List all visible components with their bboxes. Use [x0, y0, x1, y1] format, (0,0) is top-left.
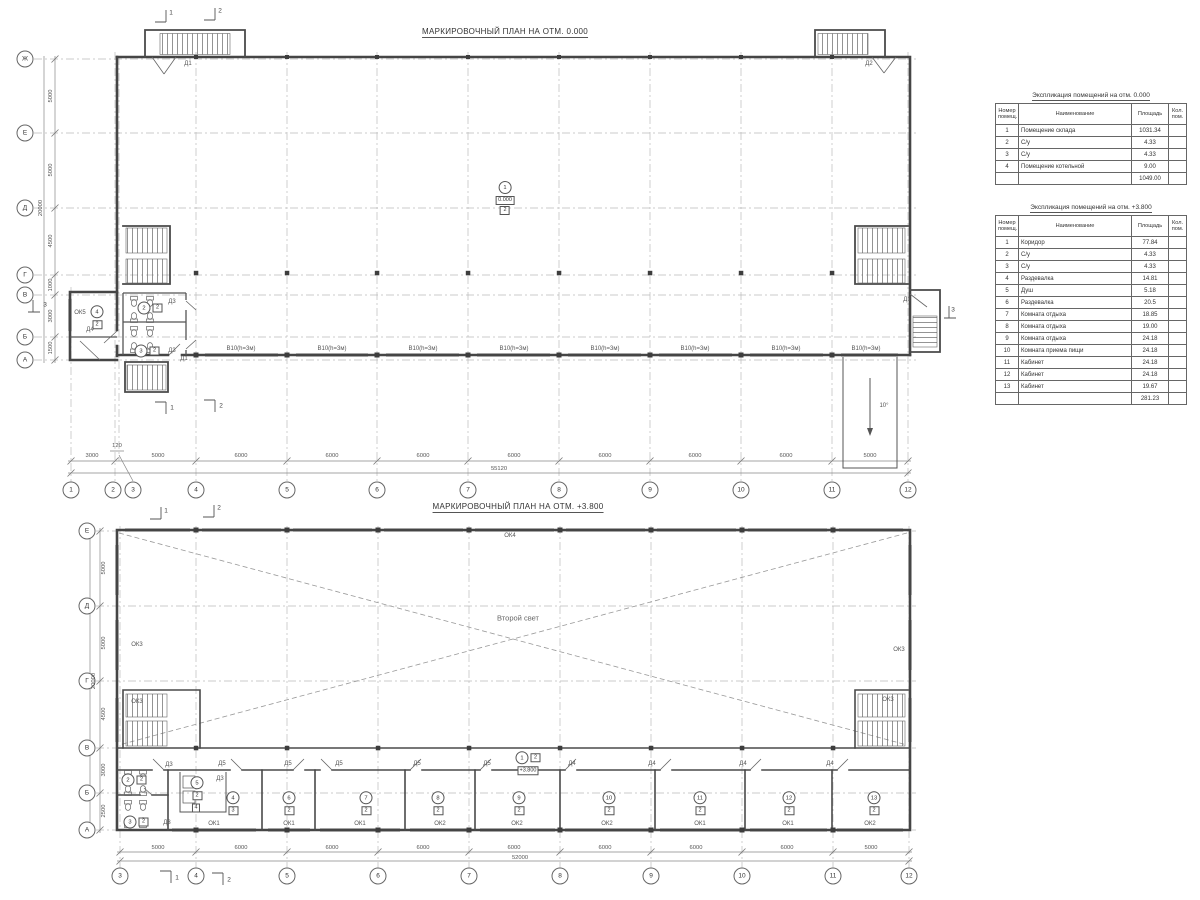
room-number-bubble: 2 [138, 302, 151, 315]
dimension-label: 3000 [48, 310, 54, 323]
cell-area: 24.18 [1132, 333, 1169, 345]
cell-number: 3 [996, 261, 1019, 273]
cell-number: 6 [996, 297, 1019, 309]
room-number-bubble: 4 [91, 305, 104, 318]
grid-row-bubble: Е [79, 523, 96, 540]
grid-row-bubble: А [79, 822, 96, 839]
room-mark: 4 2 [91, 305, 104, 329]
room-sub-box: 2 [192, 791, 202, 800]
dimension-label: 6000 [417, 845, 430, 851]
grid-col-bubble: 7 [461, 868, 478, 885]
dimension-label: 5000 [864, 453, 877, 459]
annotation-label: Д4 [739, 761, 746, 767]
annotation-label: Д4 [826, 761, 833, 767]
room-sub-box: 2 [137, 776, 147, 785]
cell-name: Комната отдыха [1019, 321, 1132, 333]
table-row: 7 Комната отдыха 18.85 [996, 309, 1187, 321]
elevation-box: 0.000 [496, 196, 515, 205]
cell-count [1169, 309, 1187, 321]
grid-col-bubble: 7 [460, 482, 477, 499]
cell-count [1169, 345, 1187, 357]
room-sub-box: 2 [361, 806, 371, 815]
cell-area: 4.33 [1132, 137, 1169, 149]
annotation-label: ОК1 [782, 821, 794, 827]
annotation-label: В10(h=3м) [772, 346, 801, 352]
table-header-row: Номер помещ. Наименование Площадь Кол. п… [996, 216, 1187, 237]
room-sub-box: 2 [784, 806, 794, 815]
annotation-label: Д3 [165, 762, 172, 768]
annotation-label: Д5 [284, 761, 291, 767]
section-flag-number: 2 [217, 505, 221, 512]
grid-col-bubble: 3 [112, 868, 129, 885]
room-sub-box: 2 [500, 206, 510, 215]
cell-area: 19.00 [1132, 321, 1169, 333]
dimension-label: 5000 [48, 164, 54, 177]
grid-col-bubble: 6 [370, 868, 387, 885]
cell-area: 24.18 [1132, 369, 1169, 381]
col-header-name: Наименование [1019, 216, 1132, 237]
dimension-label: 6000 [689, 453, 702, 459]
room-mark: 3 2 [135, 345, 160, 358]
cell-number: 7 [996, 309, 1019, 321]
drawing-canvas: МАРКИРОВОЧНЫЙ ПЛАН НА ОТМ. 0.000 МАРКИРО… [0, 0, 1200, 900]
cell-area: 18.85 [1132, 309, 1169, 321]
table-row: 8 Комната отдыха 19.00 [996, 321, 1187, 333]
cell-count [1169, 237, 1187, 249]
cell-area: 14.81 [1132, 273, 1169, 285]
cell-count [1169, 357, 1187, 369]
annotation-label: В10(h=3м) [500, 346, 529, 352]
cell-name: Раздевалка [1019, 297, 1132, 309]
dimension-label: 5000 [101, 562, 107, 575]
second-light-label: Второй свет [497, 614, 539, 623]
grid-row-bubble: В [79, 740, 96, 757]
table-row: 10 Комната приема пищи 24.18 [996, 345, 1187, 357]
cell-count [1169, 161, 1187, 173]
dimension-label: 2500 [101, 805, 107, 818]
cell-number: 5 [996, 285, 1019, 297]
plan2-total-height: 20000 [91, 673, 97, 689]
grid-col-bubble: 6 [369, 482, 386, 499]
dimension-label: 6000 [599, 453, 612, 459]
table-row: 5 Душ 5.18 [996, 285, 1187, 297]
cell-count [1169, 333, 1187, 345]
annotation-label: ОК1 [208, 821, 220, 827]
annotation-label: ОК4 [504, 533, 516, 539]
cell-area: 4.33 [1132, 261, 1169, 273]
cell-number: 11 [996, 357, 1019, 369]
room-number-bubble: 6 [283, 791, 296, 804]
col-header-area: Площадь [1132, 104, 1169, 125]
plan1-total-height: 20000 [38, 200, 44, 216]
cell-number: 2 [996, 137, 1019, 149]
grid-col-bubble: 4 [188, 868, 205, 885]
cell-number: 1 [996, 125, 1019, 137]
dimension-label: 6000 [235, 845, 248, 851]
annotation-label: ОК2 [864, 821, 876, 827]
cell-name: С/у [1019, 149, 1132, 161]
grid-col-bubble: 8 [552, 868, 569, 885]
cell-count [1169, 261, 1187, 273]
cell-area: 77.84 [1132, 237, 1169, 249]
grid-col-bubble: 5 [279, 482, 296, 499]
cell-name: Душ [1019, 285, 1132, 297]
dimension-label: 5000 [152, 453, 165, 459]
room-sub-box: 2 [531, 753, 541, 762]
dimension-label: 1500 [48, 342, 54, 355]
grid-row-bubble: А [17, 352, 34, 369]
room-number-bubble: 11 [694, 791, 707, 804]
annotation-label: ОК2 [434, 821, 446, 827]
table-row: 1 Коридор 77.84 [996, 237, 1187, 249]
grid-row-bubble: Б [17, 329, 34, 346]
cell-total-area: 1049.00 [1132, 173, 1169, 185]
room-number-bubble: 8 [432, 791, 445, 804]
annotation-label: Д2 [865, 61, 872, 67]
grid-col-bubble: 11 [824, 482, 841, 499]
cell-name: Кабинет [1019, 369, 1132, 381]
dimension-label: 4500 [48, 235, 54, 248]
dimension-label: 6000 [781, 845, 794, 851]
room-mark: 6 2 [283, 791, 296, 815]
annotation-label: В10(h=3м) [318, 346, 347, 352]
cell-count [1169, 285, 1187, 297]
table-row: 2 С/у 4.33 [996, 249, 1187, 261]
cell-name: Комната отдыха [1019, 333, 1132, 345]
plan1-title: МАРКИРОВОЧНЫЙ ПЛАН НА ОТМ. 0.000 [422, 27, 588, 38]
cell-count [1169, 369, 1187, 381]
cell-area: 20.5 [1132, 297, 1169, 309]
table-row: 6 Раздевалка 20.5 [996, 297, 1187, 309]
annotation-label: ОК3 [131, 699, 143, 705]
table-row: 13 Кабинет 19.67 [996, 381, 1187, 393]
dimension-label: 120 [112, 443, 122, 449]
annotation-label: Д3 [168, 299, 175, 305]
dimension-label: 5000 [152, 845, 165, 851]
annotation-label: ОК2 [511, 821, 523, 827]
grid-row-bubble: Б [79, 785, 96, 802]
cell-name: С/у [1019, 261, 1132, 273]
room-sub-box: 2 [604, 806, 614, 815]
plan2-total-width: 52000 [512, 855, 528, 861]
room-mark: 10 2 [603, 791, 616, 815]
cell-empty [996, 393, 1019, 405]
annotation-label: ОК2 [601, 821, 613, 827]
dimension-label: 6000 [326, 453, 339, 459]
table-title: Экспликация помещений на отм. 0.000 [995, 92, 1187, 99]
section-flag-number: 3 [43, 302, 47, 309]
room-sub-box: 2 [433, 806, 443, 815]
annotation-label: ОК3 [893, 647, 905, 653]
dimension-label: 6000 [508, 453, 521, 459]
plan2-title: МАРКИРОВОЧНЫЙ ПЛАН НА ОТМ. +3.800 [433, 502, 604, 513]
room-number-bubble: 4 [227, 791, 240, 804]
grid-row-bubble: Д [79, 598, 96, 615]
section-flag-number: 2 [218, 8, 222, 15]
cell-total-area: 281.23 [1132, 393, 1169, 405]
grid-col-bubble: 12 [901, 868, 918, 885]
dimension-label: 3000 [86, 453, 99, 459]
dimension-label: 6000 [780, 453, 793, 459]
room-number-bubble: 12 [783, 791, 796, 804]
room-schedule-table-1: Экспликация помещений на отм. +3.800 Ном… [995, 204, 1187, 405]
cell-empty [1169, 393, 1187, 405]
dimension-label: 6000 [508, 845, 521, 851]
section-flag-number: 1 [164, 508, 168, 515]
section-flag-number: 1 [175, 875, 179, 882]
plan1-elevation-mark: 1 0.000 2 [496, 181, 515, 215]
annotation-label: Д1 [184, 61, 191, 67]
room-sub-box: 2 [869, 806, 879, 815]
cell-number: 10 [996, 345, 1019, 357]
room-mark: 3 2 [124, 816, 149, 829]
annotation-label: ОК5 [74, 310, 86, 316]
room-number-bubble: 7 [360, 791, 373, 804]
cell-count [1169, 321, 1187, 333]
cell-empty [1019, 393, 1132, 405]
table-row: 11 Кабинет 24.18 [996, 357, 1187, 369]
room-number-bubble: 3 [135, 345, 148, 358]
cell-area: 4.33 [1132, 249, 1169, 261]
cell-count [1169, 149, 1187, 161]
cell-area: 1031.34 [1132, 125, 1169, 137]
section-flag-number: 2 [227, 877, 231, 884]
cell-number: 2 [996, 249, 1019, 261]
cell-number: 13 [996, 381, 1019, 393]
dimension-label: 6000 [417, 453, 430, 459]
section-flag-number: 1 [169, 10, 173, 17]
cell-number: 4 [996, 273, 1019, 285]
room-mark: 2 2 [138, 302, 163, 315]
annotation-label: Д4 [648, 761, 655, 767]
table-row: 3 С/у 4.33 [996, 149, 1187, 161]
annotation-label: ОК3 [882, 697, 894, 703]
cell-area: 4.33 [1132, 149, 1169, 161]
cell-name: Помещение склада [1019, 125, 1132, 137]
grid-row-bubble: Ж [17, 51, 34, 68]
cell-area: 24.18 [1132, 357, 1169, 369]
room-number-bubble: 1 [498, 181, 511, 194]
room-sub-box: 2 [284, 806, 294, 815]
room-sub-box: 2 [514, 806, 524, 815]
dimension-label: 5000 [48, 90, 54, 103]
cell-count [1169, 273, 1187, 285]
table-row: 4 Помещение котельной 9.00 [996, 161, 1187, 173]
room-number-bubble: 1 [516, 751, 529, 764]
elevation-box: +3.800 [517, 766, 539, 775]
table-row: 3 С/у 4.33 [996, 261, 1187, 273]
annotation-label: ОК1 [354, 821, 366, 827]
dimension-label: 6000 [235, 453, 248, 459]
annotation-label: ОК1 [694, 821, 706, 827]
annotation-label: ОК1 [283, 821, 295, 827]
room-number-bubble: 2 [122, 774, 135, 787]
cell-name: С/у [1019, 137, 1132, 149]
room-mark: 11 2 [694, 791, 707, 815]
room-number-bubble: 10 [603, 791, 616, 804]
grid-col-bubble: 8 [551, 482, 568, 499]
cell-name: Коридор [1019, 237, 1132, 249]
cell-count [1169, 297, 1187, 309]
col-header-number: Номер помещ. [996, 216, 1019, 237]
room-sub-box: 2 [92, 320, 102, 329]
cell-number: 3 [996, 149, 1019, 161]
annotation-label: В10(h=3м) [681, 346, 710, 352]
cell-count [1169, 249, 1187, 261]
annotation-label: Д5 [218, 761, 225, 767]
cell-name: Комната приема пищи [1019, 345, 1132, 357]
annotation-label: Д3 [163, 820, 170, 826]
grid-row-bubble: Д [17, 200, 34, 217]
cell-empty [996, 173, 1019, 185]
grid-row-bubble: В [17, 287, 34, 304]
col-header-count: Кол. пом. [1169, 104, 1187, 125]
annotation-label: Д5 [335, 761, 342, 767]
section-flag-number: 2 [219, 403, 223, 410]
cell-empty [1019, 173, 1132, 185]
annotation-overlay: МАРКИРОВОЧНЫЙ ПЛАН НА ОТМ. 0.000 МАРКИРО… [0, 0, 1200, 900]
cell-count [1169, 137, 1187, 149]
dimension-label: 5000 [101, 637, 107, 650]
annotation-label: Д5 [413, 761, 420, 767]
annotation-label: ОК3 [131, 642, 143, 648]
plan2-elevation-mark: 1 2 +3.800 [516, 751, 541, 775]
table-row: 9 Комната отдыха 24.18 [996, 333, 1187, 345]
table-total-row: 281.23 [996, 393, 1187, 405]
grid-col-bubble: 10 [733, 482, 750, 499]
room-number-bubble: 3 [124, 816, 137, 829]
section-flag-number: 3 [951, 307, 955, 314]
cell-number: 9 [996, 333, 1019, 345]
grid-col-bubble: 1 [63, 482, 80, 499]
annotation-label: В10(h=3м) [852, 346, 881, 352]
dimension-label: 6000 [690, 845, 703, 851]
plan1-total-width: 55120 [491, 466, 507, 472]
grid-col-bubble: 2 [105, 482, 122, 499]
table-row: 4 Раздевалка 14.81 [996, 273, 1187, 285]
room-number-bubble: 13 [868, 791, 881, 804]
dimension-label: 4500 [101, 708, 107, 721]
table-row: 12 Кабинет 24.18 [996, 369, 1187, 381]
grid-col-bubble: 12 [900, 482, 917, 499]
annotation-label: Д5 [483, 761, 490, 767]
grid-col-bubble: 9 [643, 868, 660, 885]
cell-number: 8 [996, 321, 1019, 333]
room-sub-box: 3 [228, 806, 238, 815]
section-flag-number: 1 [170, 405, 174, 412]
room-mark: 2 2 [122, 774, 147, 787]
room-number-bubble: 5 [191, 776, 204, 789]
table-row: 1 Помещение склада 1031.34 [996, 125, 1187, 137]
cell-number: 12 [996, 369, 1019, 381]
table-total-row: 1049.00 [996, 173, 1187, 185]
annotation-label: Д4 [568, 761, 575, 767]
annotation-label: В10(h=3м) [227, 346, 256, 352]
cell-area: 9.00 [1132, 161, 1169, 173]
cell-area: 19.67 [1132, 381, 1169, 393]
dimension-label: 6000 [599, 845, 612, 851]
annotation-label: Д1 [903, 297, 910, 303]
grid-row-bubble: Е [17, 125, 34, 142]
cell-number: 1 [996, 237, 1019, 249]
table-header-row: Номер помещ. Наименование Площадь Кол. п… [996, 104, 1187, 125]
cell-name: Кабинет [1019, 357, 1132, 369]
cell-name: Комната отдыха [1019, 309, 1132, 321]
boxed-mark: 4 [192, 804, 200, 813]
room-mark: 12 2 [783, 791, 796, 815]
col-header-area: Площадь [1132, 216, 1169, 237]
room-sub-box: 2 [150, 347, 160, 356]
grid-row-bubble: Г [17, 267, 34, 284]
grid-col-bubble: 11 [825, 868, 842, 885]
grid-col-bubble: 10 [734, 868, 751, 885]
col-header-number: Номер помещ. [996, 104, 1019, 125]
room-sub-box: 2 [139, 818, 149, 827]
room-mark: 4 3 [227, 791, 240, 815]
dimension-label: 6000 [326, 845, 339, 851]
dimension-label: 1000 [48, 279, 54, 292]
cell-name: Помещение котельной [1019, 161, 1132, 173]
room-number-bubble: 9 [513, 791, 526, 804]
cell-area: 5.18 [1132, 285, 1169, 297]
room-schedule-table-0: Экспликация помещений на отм. 0.000 Номе… [995, 92, 1187, 185]
room-mark: 7 2 [360, 791, 373, 815]
cell-count [1169, 381, 1187, 393]
dimension-label: 5000 [865, 845, 878, 851]
cell-name: Кабинет [1019, 381, 1132, 393]
annotation-label: Д1 [180, 356, 187, 362]
cell-name: С/у [1019, 249, 1132, 261]
room-mark: 9 2 [513, 791, 526, 815]
room-mark: 8 2 [432, 791, 445, 815]
grid-col-bubble: 4 [188, 482, 205, 499]
room-sub-box: 2 [695, 806, 705, 815]
grid-col-bubble: 9 [642, 482, 659, 499]
annotation-label: Д3 [168, 348, 175, 354]
cell-empty [1169, 173, 1187, 185]
table-row: 2 С/у 4.33 [996, 137, 1187, 149]
cell-area: 24.18 [1132, 345, 1169, 357]
grid-col-bubble: 3 [125, 482, 142, 499]
room-mark: 13 2 [868, 791, 881, 815]
cell-name: Раздевалка [1019, 273, 1132, 285]
dimension-label: 3000 [101, 764, 107, 777]
grid-col-bubble: 5 [279, 868, 296, 885]
col-header-count: Кол. пом. [1169, 216, 1187, 237]
col-header-name: Наименование [1019, 104, 1132, 125]
room-mark: 5 2 [191, 776, 204, 800]
cell-count [1169, 125, 1187, 137]
annotation-label: 10° [879, 403, 888, 409]
annotation-label: В10(h=3м) [409, 346, 438, 352]
cell-number: 4 [996, 161, 1019, 173]
room-sub-box: 2 [153, 304, 163, 313]
annotation-label: В10(h=3м) [591, 346, 620, 352]
table-title: Экспликация помещений на отм. +3.800 [995, 204, 1187, 211]
annotation-label: Д3 [216, 776, 223, 782]
